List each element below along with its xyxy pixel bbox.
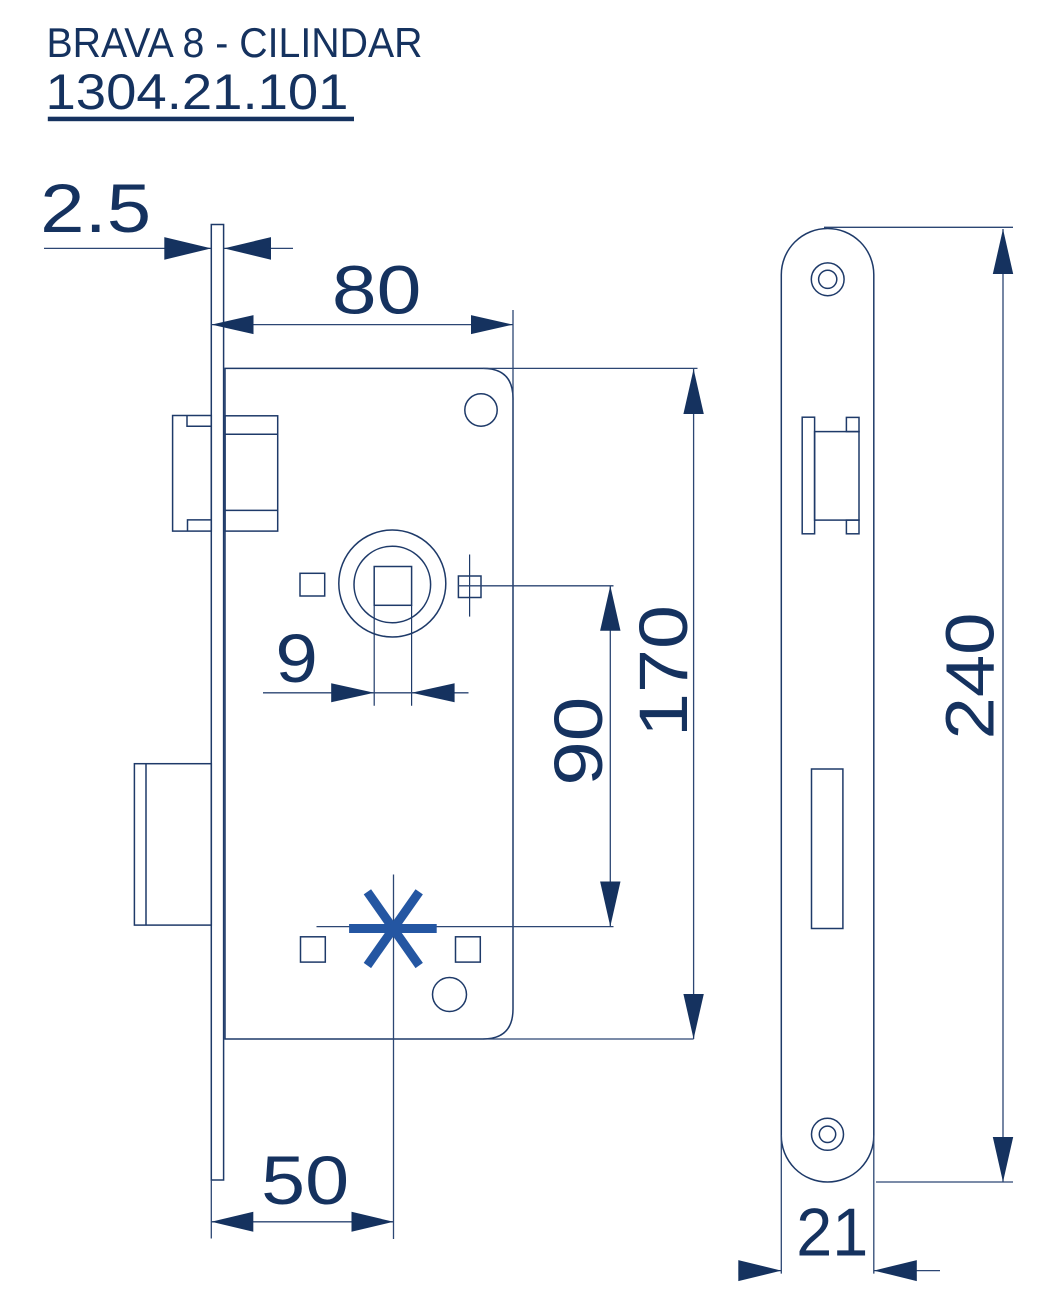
svg-text:21: 21 [796, 1195, 868, 1271]
svg-text:50: 50 [261, 1142, 349, 1219]
svg-text:2.5: 2.5 [40, 170, 151, 247]
svg-text:80: 80 [332, 251, 422, 328]
svg-text:BRAVA 8 - CILINDAR: BRAVA 8 - CILINDAR [47, 19, 423, 66]
svg-text:90: 90 [540, 697, 617, 786]
svg-text:170: 170 [625, 605, 702, 737]
svg-text:1304.21.101: 1304.21.101 [46, 64, 349, 120]
svg-text:240: 240 [932, 613, 1009, 740]
svg-text:9: 9 [275, 620, 318, 697]
